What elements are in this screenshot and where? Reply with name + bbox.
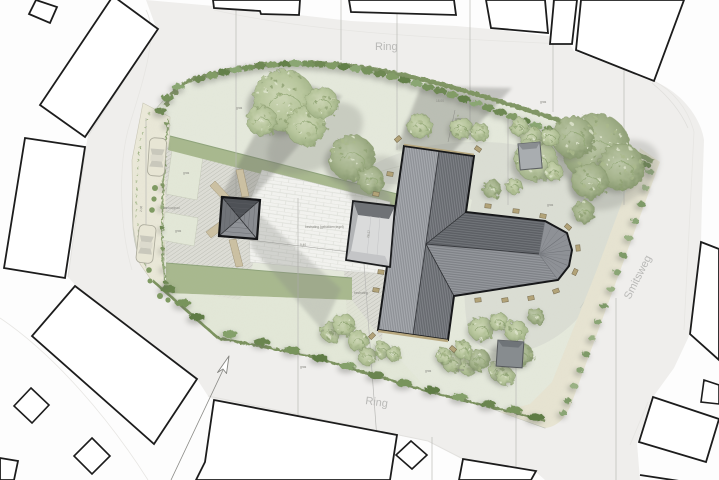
svg-text:gras: gras xyxy=(175,229,182,233)
svg-text:gras: gras xyxy=(300,365,307,369)
svg-text:gras: gras xyxy=(547,203,554,207)
svg-text:gras: gras xyxy=(540,100,547,104)
svg-text:gras: gras xyxy=(236,106,243,110)
svg-text:18.00: 18.00 xyxy=(436,99,444,103)
svg-text:2.08: 2.08 xyxy=(139,205,143,212)
svg-text:bestrating (gebakken tegel): bestrating (gebakken tegel) xyxy=(305,225,344,229)
svg-text:gras: gras xyxy=(458,368,465,372)
svg-text:Ring: Ring xyxy=(375,41,398,53)
svg-text:5.40: 5.40 xyxy=(300,243,306,247)
svg-text:gras: gras xyxy=(425,369,432,373)
svg-text:bestrating: bestrating xyxy=(354,291,368,295)
svg-text:gras: gras xyxy=(455,117,462,121)
svg-text:aanlooppad: aanlooppad xyxy=(163,206,180,210)
svg-text:gras: gras xyxy=(183,171,190,175)
